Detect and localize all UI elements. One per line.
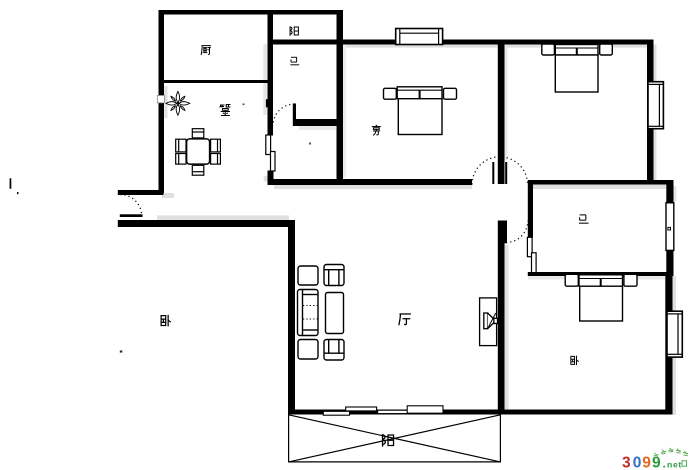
- svg-text:0: 0: [633, 455, 642, 470]
- svg-text:.: .: [663, 457, 666, 470]
- svg-text:net: net: [667, 460, 682, 470]
- svg-text:3: 3: [622, 455, 631, 470]
- svg-text:9: 9: [642, 455, 651, 470]
